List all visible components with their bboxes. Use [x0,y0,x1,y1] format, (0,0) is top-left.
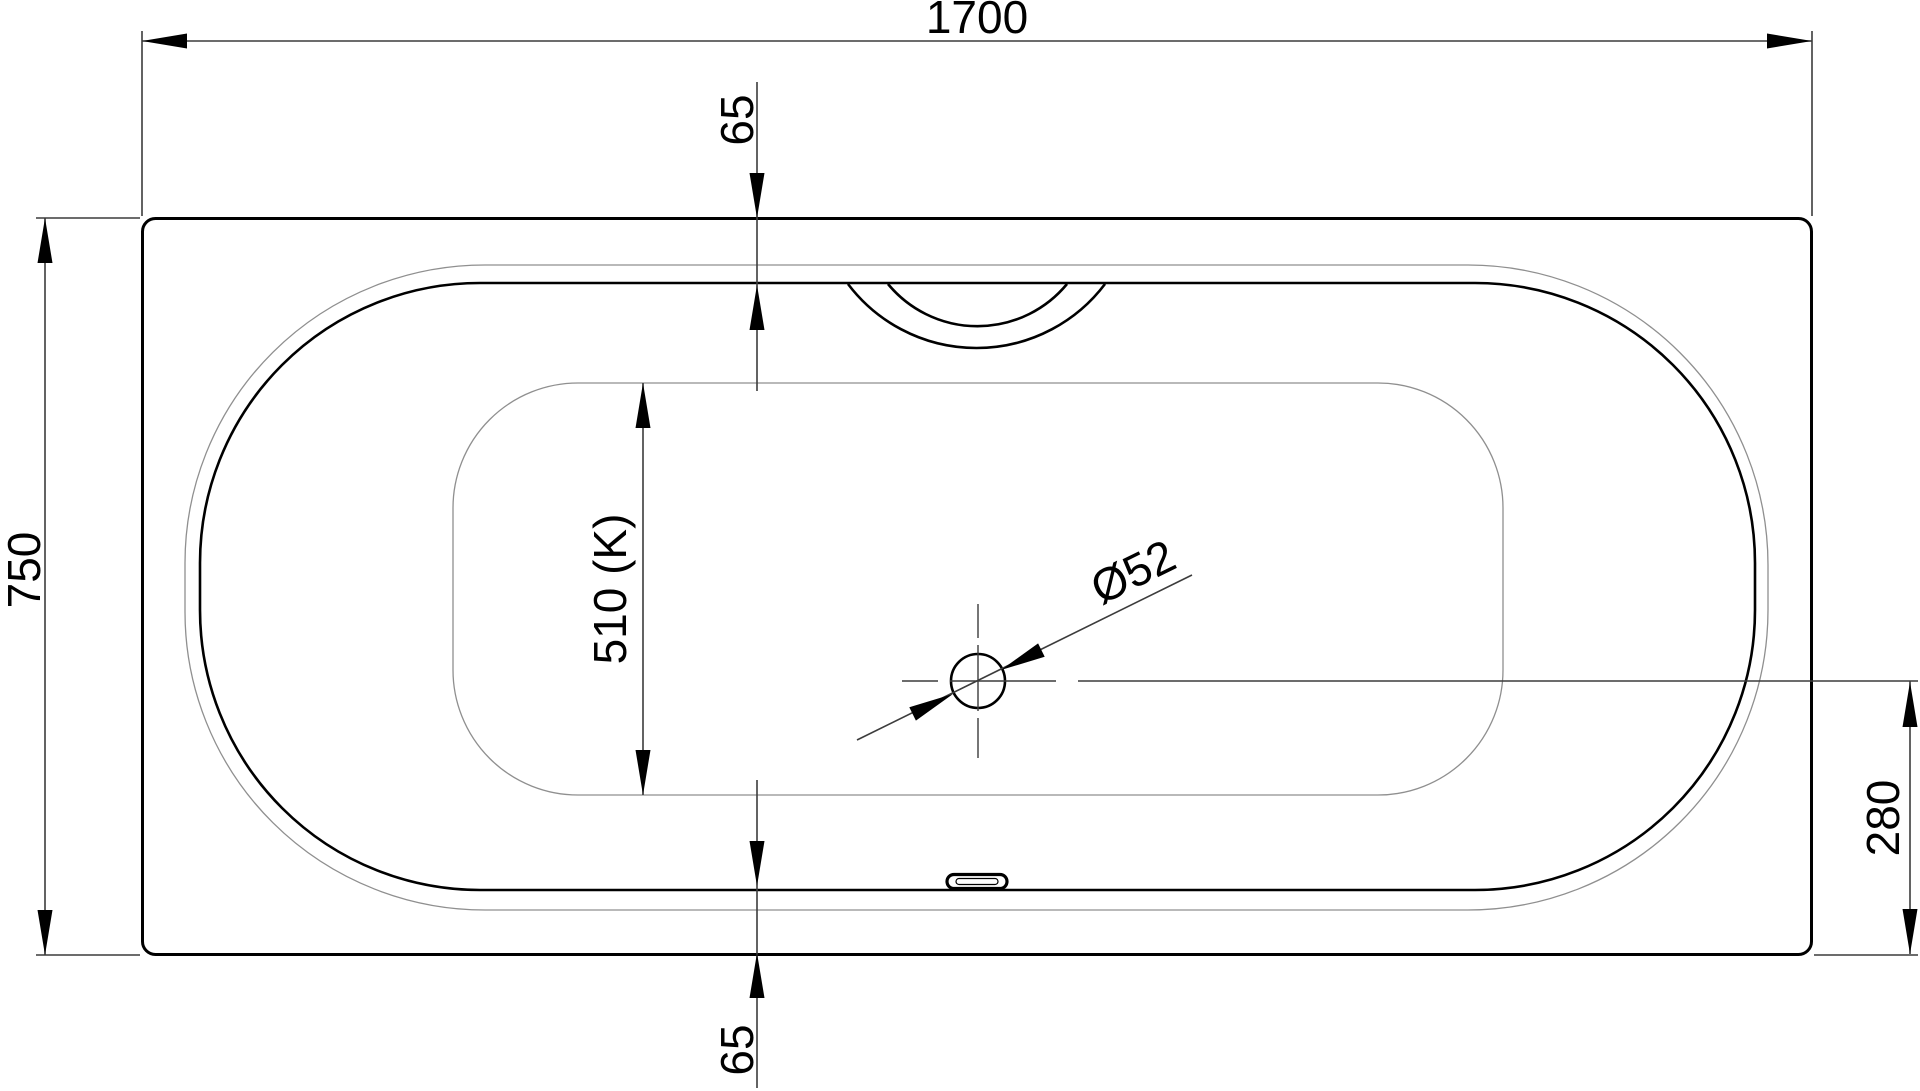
dim-length-label: 1700 [926,0,1028,43]
overflow-outer-arc [848,284,1105,348]
arrow-toward-circle-icon [1001,643,1045,670]
arrow-down-icon [1903,909,1918,954]
bathtub-technical-drawing: 1700 750 65 65 510 (K) Ø52 280 [0,0,1920,1091]
arrow-down-icon [636,750,651,795]
dim-floor-width-label: 510 (K) [584,514,636,665]
arrow-left-icon [142,34,187,49]
tub-outer-rim [143,219,1812,955]
dim-drain-diameter-label: Ø52 [1082,529,1183,614]
tub-rim-inner-contour [185,265,1768,910]
dim-drain-offset-label: 280 [1857,780,1909,857]
arrow-up-icon [750,953,765,998]
arrow-down-icon [750,173,765,218]
dim-rim-top-label: 65 [711,94,763,145]
arrow-up-icon [1903,682,1918,727]
arrow-down-icon [750,841,765,886]
arrow-down-icon [38,910,53,955]
arrow-right-icon [1767,34,1812,49]
arrow-up-icon [636,383,651,428]
overflow-inner-arc [888,284,1067,326]
foot-grip-inner [956,879,998,885]
dim-width-label: 750 [0,532,50,609]
arrow-toward-circle-icon [909,694,953,721]
dim-rim-bottom-label: 65 [711,1024,763,1075]
arrow-up-icon [38,218,53,263]
tub-bowl-contour [200,283,1755,890]
bathtub-top-view-plan: 1700 750 65 65 510 (K) Ø52 280 [0,0,1920,1091]
arrow-up-icon [750,285,765,330]
